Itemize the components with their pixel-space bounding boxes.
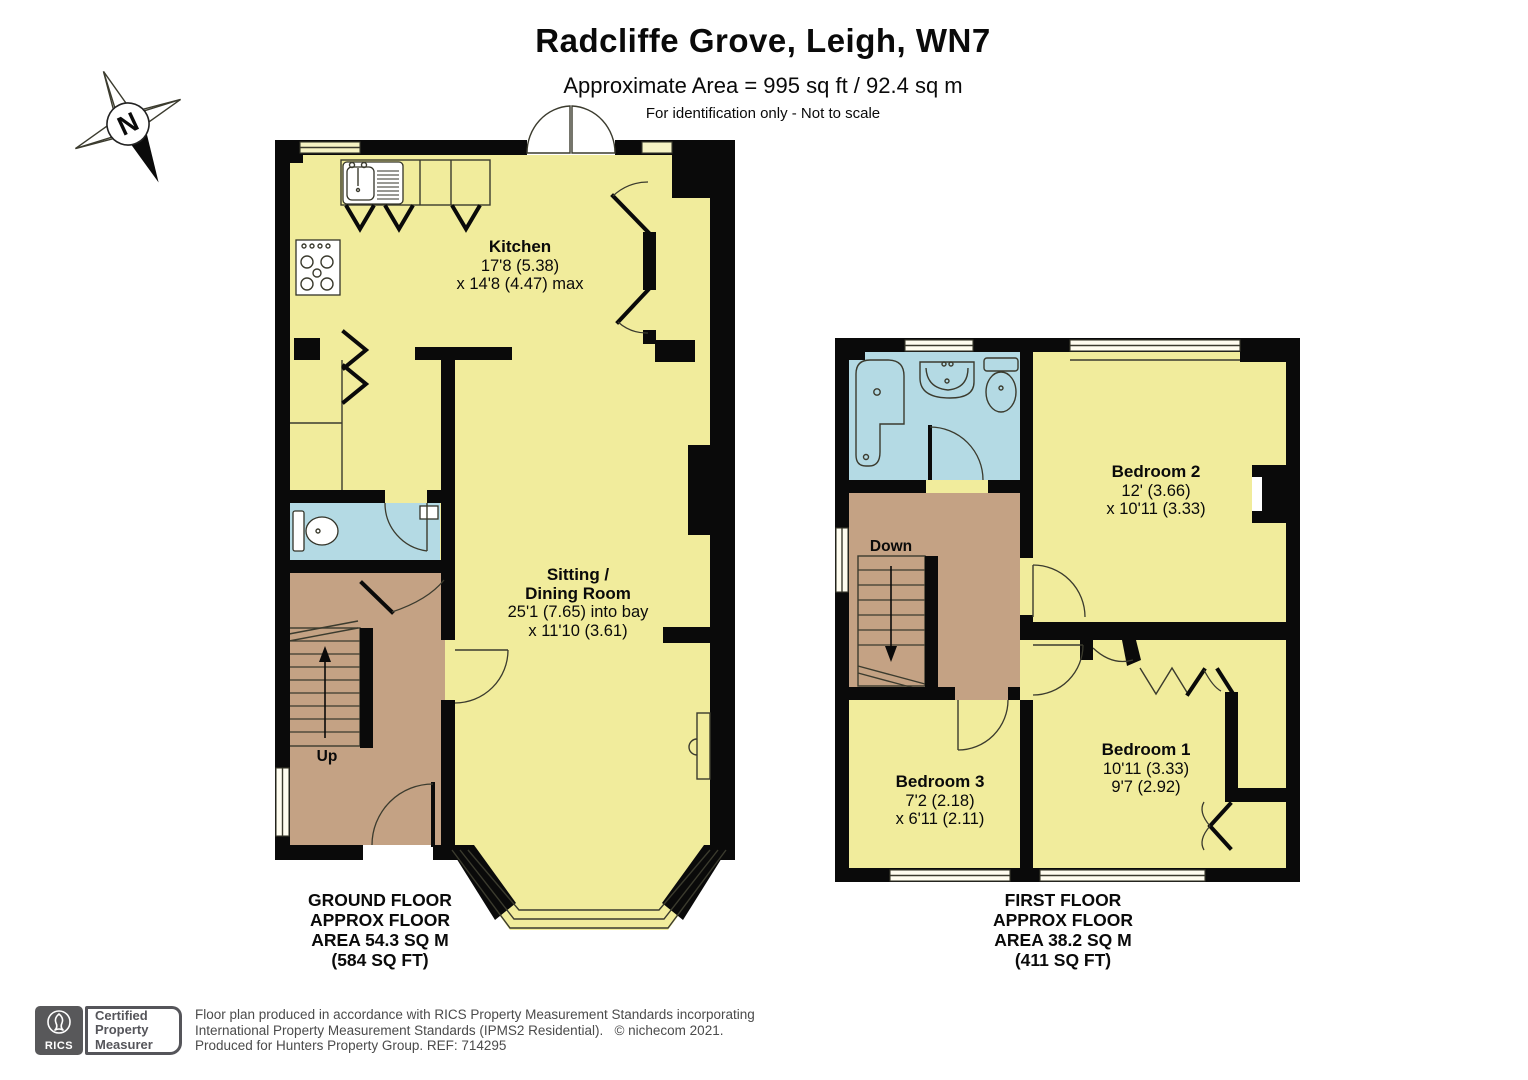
rics-logo: RICS (35, 1006, 83, 1055)
floorplan-page: N (0, 0, 1528, 1080)
kitchen-label: Kitchen 17'8 (5.38) x 14'8 (4.47) max (457, 238, 584, 294)
hob-icon (296, 240, 340, 295)
bedroom1-label: Bedroom 1 10'11 (3.33) 9'7 (2.92) (1102, 741, 1191, 797)
sitting-dining-label: Sitting / Dining Room 25'1 (7.65) into b… (508, 566, 649, 640)
rics-lion-icon (35, 1006, 83, 1040)
footer: RICS Certified Property Measurer Floor p… (35, 1006, 755, 1055)
certified-property-measurer-badge: Certified Property Measurer (85, 1006, 182, 1055)
page-title: Radcliffe Grove, Leigh, WN7 (535, 22, 990, 60)
disclaimer-line: For identification only - Not to scale (646, 105, 880, 122)
floorplan-drawing: N (0, 0, 1528, 1080)
rics-wordmark: RICS (35, 1040, 83, 1052)
stairs-down-label: Down (870, 538, 912, 556)
chimney-breast (688, 445, 710, 535)
bedroom2-label: Bedroom 2 12' (3.66) x 10'11 (3.33) (1106, 463, 1205, 519)
stairs-up-label: Up (317, 748, 338, 766)
approx-area-line: Approximate Area = 995 sq ft / 92.4 sq m (563, 73, 962, 99)
ground-floor-caption: GROUND FLOOR APPROX FLOOR AREA 54.3 SQ M… (308, 890, 452, 970)
north-compass-icon: N (51, 47, 209, 208)
first-floor-caption: FIRST FLOOR APPROX FLOOR AREA 38.2 SQ M … (993, 890, 1133, 970)
ground-floor-plan (275, 106, 735, 930)
footer-disclaimer-text: Floor plan produced in accordance with R… (195, 1006, 755, 1054)
bedroom3-label: Bedroom 3 7'2 (2.18) x 6'11 (2.11) (896, 773, 985, 829)
kitchen-window-2 (642, 142, 672, 153)
